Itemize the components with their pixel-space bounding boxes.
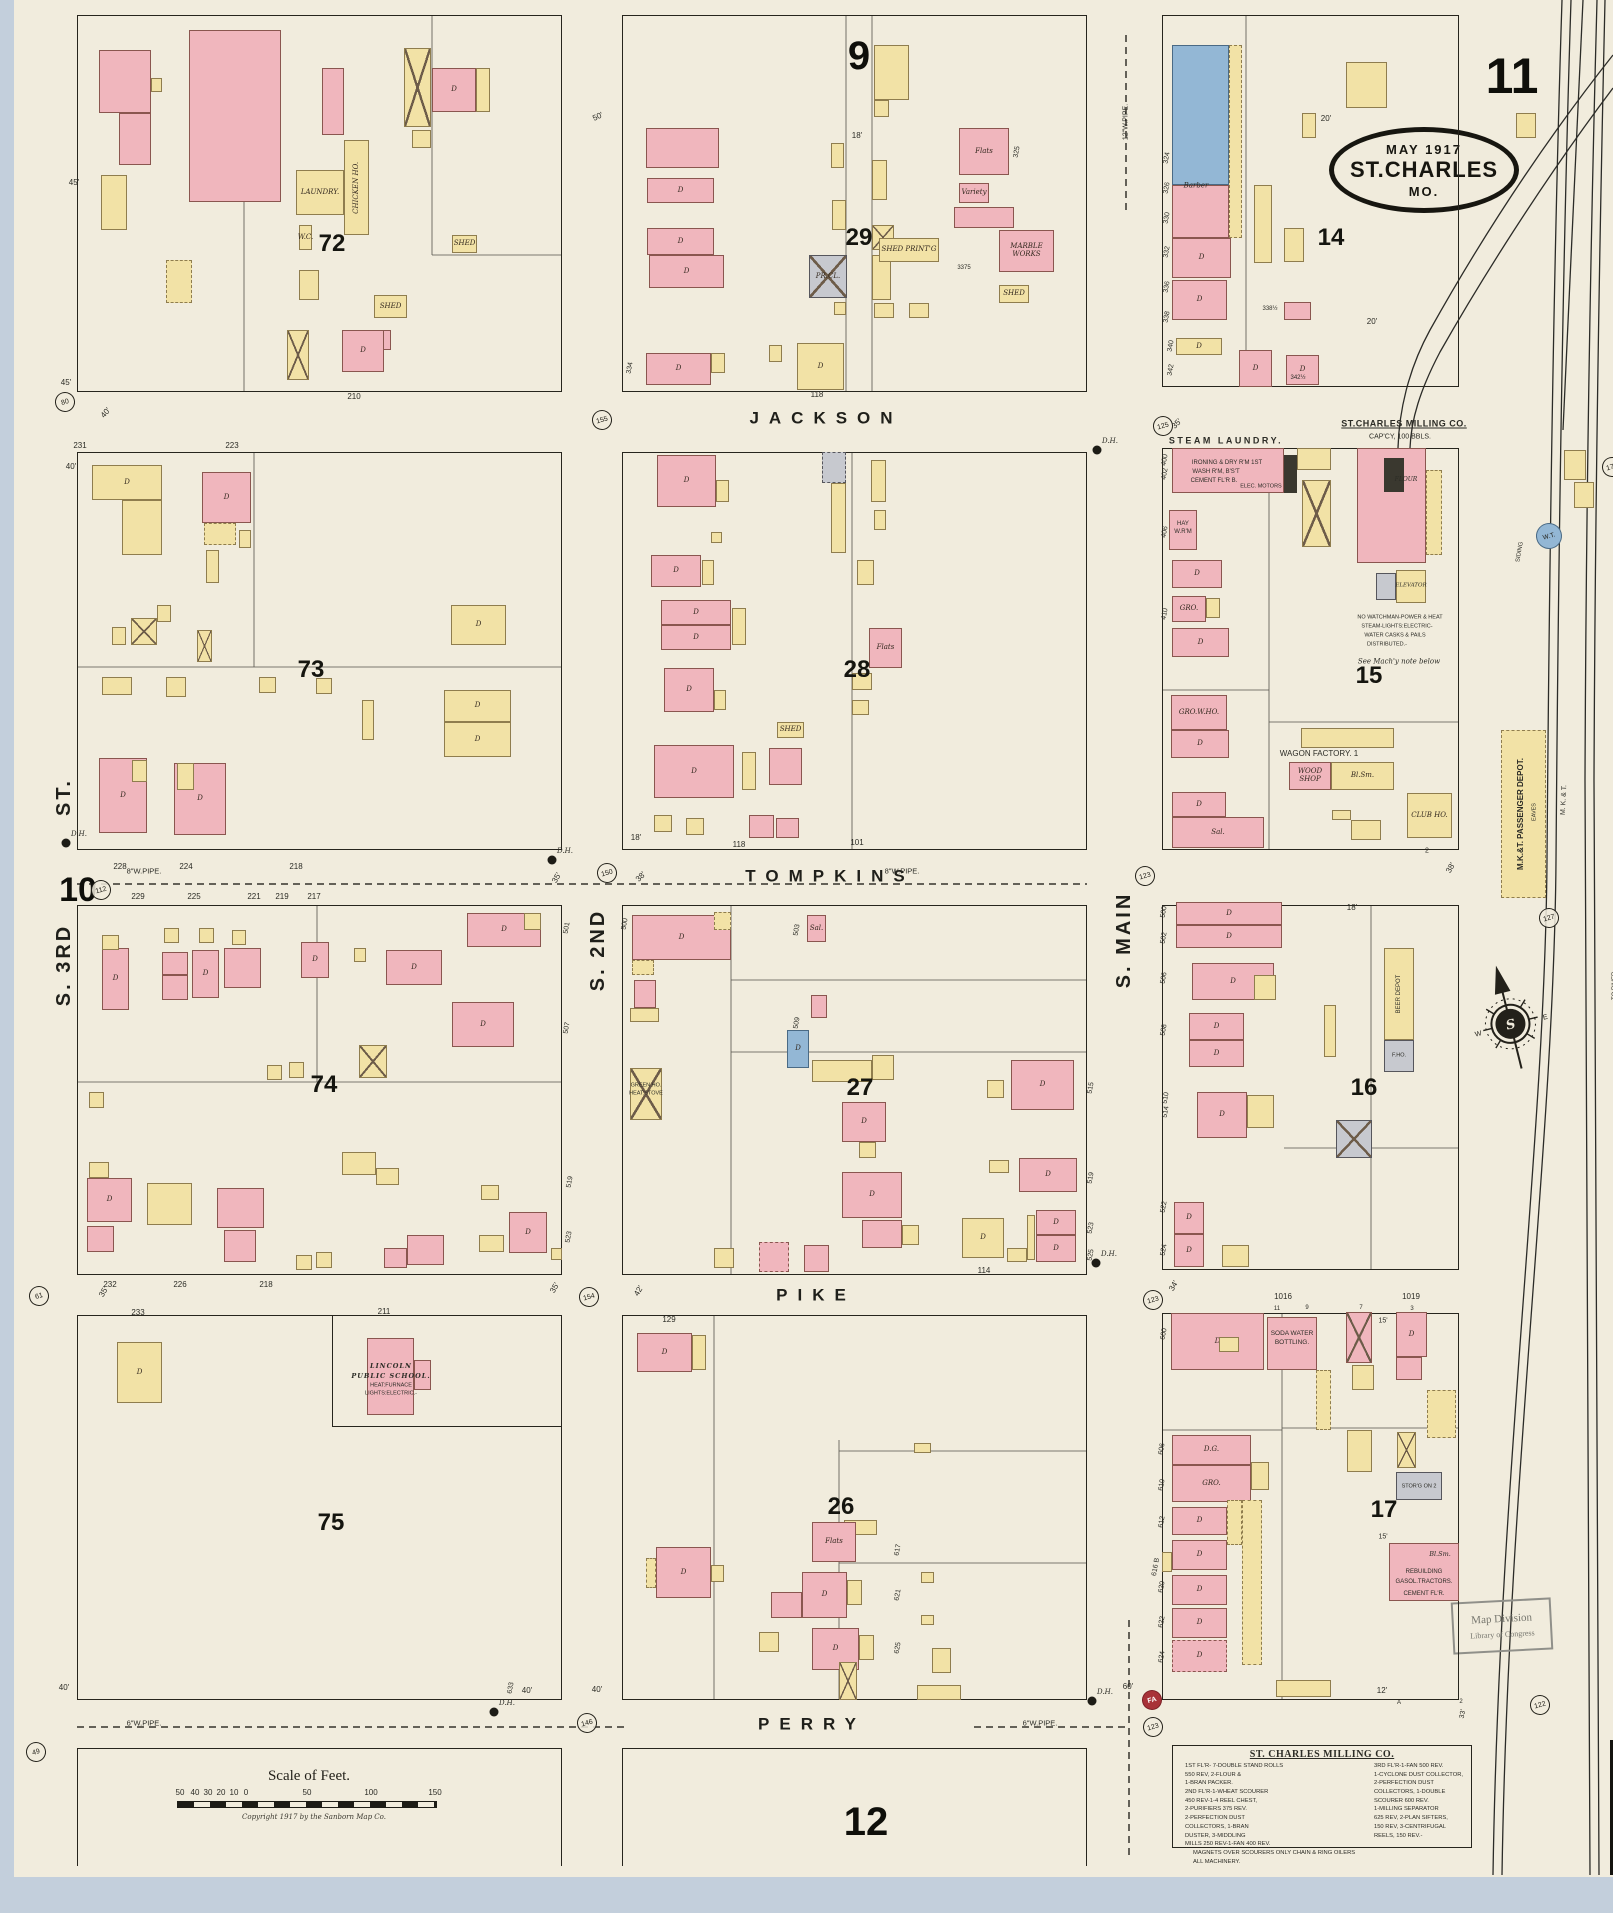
building — [1222, 1245, 1249, 1267]
building — [89, 1092, 104, 1108]
building: D — [444, 690, 511, 722]
building-label: D — [113, 975, 119, 983]
map-label: 40' — [59, 1684, 69, 1692]
block-outline — [77, 1748, 562, 1866]
hydrant-marker: 150 — [595, 861, 619, 885]
building — [1332, 810, 1351, 820]
building — [1302, 113, 1316, 138]
hydrant-marker: 123 — [1141, 1715, 1165, 1739]
building — [874, 303, 894, 318]
map-label: DISTRIBUTED.- — [1367, 642, 1407, 648]
map-label: WAGON FACTORY. 1 — [1280, 750, 1358, 758]
building: D — [451, 605, 506, 645]
building: Bl.Sm. — [1331, 762, 1394, 790]
map-label: 519 — [566, 1176, 575, 1189]
building-label: D — [1409, 1331, 1415, 1339]
map-label: 40' — [66, 463, 76, 471]
building — [630, 1008, 659, 1022]
building — [112, 627, 126, 645]
building-label: D — [501, 926, 507, 934]
map-label: 8"W.PIPE. — [127, 867, 162, 875]
building — [632, 960, 654, 975]
building-label: D — [684, 477, 690, 485]
block-number: 75 — [318, 1509, 345, 1537]
stamp-line-1: Map Division — [1471, 1611, 1532, 1626]
map-label: 38' — [1445, 861, 1457, 874]
building — [732, 608, 746, 645]
building: SHED — [777, 722, 804, 738]
building — [634, 980, 656, 1008]
building — [1324, 1005, 1336, 1057]
building: D — [649, 255, 724, 288]
building — [224, 948, 261, 988]
building-label: D.G. — [1204, 1446, 1219, 1454]
map-label: SIDING — [1515, 541, 1524, 562]
building: D — [1171, 1313, 1264, 1370]
building: D — [1036, 1210, 1076, 1235]
map-label: HAY — [1177, 521, 1189, 527]
building-label: D — [1230, 978, 1236, 986]
building-label: D — [1199, 254, 1205, 262]
hydrant-marker: 155 — [590, 408, 614, 432]
building: D — [509, 1212, 547, 1253]
building — [316, 1252, 332, 1268]
double-hydrant-dot — [62, 839, 71, 848]
building: D — [1176, 925, 1282, 948]
building-label: D — [1226, 933, 1232, 941]
map-label: 218 — [289, 863, 302, 871]
building-label: D — [678, 238, 684, 246]
building: D — [1189, 1040, 1244, 1067]
building-label: Variety — [961, 189, 986, 197]
building-label: D — [312, 956, 318, 964]
building — [859, 1635, 874, 1660]
building — [769, 345, 782, 362]
building — [859, 1142, 876, 1158]
building-label: D — [673, 567, 679, 575]
block-number: 17 — [1371, 1496, 1398, 1524]
building: D — [301, 942, 329, 978]
map-label: EAVES — [1532, 803, 1538, 821]
building-label: D — [480, 1021, 486, 1029]
building-label: D — [360, 347, 366, 355]
building — [914, 1443, 931, 1453]
building-label: Bl.Sm. — [1351, 772, 1374, 780]
milling-machinery-note: ST. CHARLES MILLING CO. 1ST FL'R- 7-DOUB… — [1172, 1745, 1472, 1848]
building-label: D — [1186, 1214, 1192, 1222]
building — [197, 630, 212, 662]
building — [954, 207, 1014, 228]
building: D — [1239, 350, 1272, 387]
building — [646, 128, 719, 168]
map-label: ST. — [54, 778, 74, 816]
double-hydrant-dot — [548, 856, 557, 865]
map-label: 118 — [733, 841, 746, 849]
building: SHED — [999, 285, 1029, 303]
building — [776, 818, 799, 838]
building: D — [1172, 1640, 1227, 1672]
rail-line — [1585, 0, 1597, 1875]
building — [162, 952, 188, 975]
building-label: D — [818, 363, 824, 371]
building: D — [842, 1172, 902, 1218]
double-hydrant-dot — [1088, 1697, 1097, 1706]
building — [686, 818, 704, 835]
building — [1516, 113, 1536, 138]
scale-tick: 50 — [176, 1789, 185, 1797]
map-label: 40' — [592, 1686, 602, 1694]
building: D — [1011, 1060, 1074, 1110]
building-label: MARBLE WORKS — [1000, 243, 1053, 258]
building-label: CLUB HO. — [1411, 812, 1448, 820]
map-label: 20' — [1321, 115, 1331, 123]
stamp-line-2: Library of Congress — [1470, 1628, 1535, 1640]
building — [1027, 1215, 1035, 1260]
building — [1206, 598, 1220, 618]
block-number: 27 — [847, 1074, 874, 1102]
building: PR.CL. — [809, 255, 847, 298]
building-label: D — [1197, 296, 1203, 304]
building — [711, 1565, 724, 1582]
building: Variety — [959, 183, 989, 203]
map-label: 1019 — [1402, 1293, 1420, 1301]
building-label: D — [691, 768, 697, 776]
building — [654, 815, 672, 832]
map-label: 8"W.PIPE. — [885, 867, 920, 875]
map-label: STOR'G ON 2 — [1402, 1484, 1437, 1490]
building-label: D — [1186, 1247, 1192, 1255]
building: D — [1172, 1575, 1227, 1605]
block-number: 14 — [1318, 224, 1345, 252]
building — [267, 1065, 282, 1080]
building — [1007, 1248, 1027, 1262]
map-label: 616 B — [1151, 1557, 1161, 1576]
svg-text:E: E — [1542, 1014, 1549, 1022]
building — [1396, 1357, 1422, 1380]
map-label: 18' — [852, 132, 862, 140]
hydrant-marker: 177 — [1600, 455, 1613, 479]
map-label: 9 — [1305, 1305, 1308, 1311]
building-label: WOOD SHOP — [1290, 768, 1330, 783]
block-number: 29 — [846, 224, 873, 252]
building-label: D — [124, 479, 130, 487]
map-label: 45' — [69, 179, 79, 187]
building — [299, 270, 319, 300]
map-label: 3375 — [957, 265, 970, 271]
block-number: 16 — [1351, 1074, 1378, 1102]
building: D — [1036, 1235, 1076, 1262]
building: D — [651, 555, 701, 587]
building — [359, 1045, 387, 1078]
building — [166, 260, 192, 303]
building-label: D — [1253, 365, 1259, 373]
map-label: 229 — [131, 893, 144, 901]
building: WOOD SHOP — [1289, 762, 1331, 790]
map-sheet: MAY 1917 ST.CHARLES MO. S W E Scale of F… — [14, 0, 1613, 1877]
building: D — [1396, 1312, 1427, 1357]
building: GRO.W.HO. — [1171, 695, 1227, 730]
building — [217, 1188, 264, 1228]
building — [1229, 45, 1242, 238]
map-label: LIGHTS:ELECTRIC.- — [365, 1391, 417, 1397]
map-label: 34' — [1168, 1279, 1180, 1292]
building: D — [1172, 1608, 1227, 1638]
building: D — [386, 950, 442, 985]
building: D — [842, 1102, 886, 1142]
map-label: 515 — [1087, 1082, 1096, 1095]
building: D — [802, 1572, 847, 1618]
building-label: D — [1214, 1050, 1220, 1058]
building — [921, 1615, 934, 1625]
map-label: WASH R'M, B'S'T — [1192, 469, 1239, 475]
building-label: SHED — [1003, 290, 1025, 298]
building — [716, 480, 729, 502]
map-label: CEMENT FL'R. — [1403, 1591, 1444, 1597]
map-label: PIKE — [776, 1287, 856, 1304]
building-label: D — [869, 1191, 875, 1199]
adjacent-sheet-number: 12 — [844, 1802, 889, 1842]
map-label: 6"W.PIPE. — [127, 1719, 162, 1727]
scale-tick: 0 — [244, 1789, 248, 1797]
map-label: 15' — [1378, 1318, 1387, 1325]
building — [87, 1226, 114, 1252]
map-label: 523 — [565, 1231, 574, 1244]
building — [874, 45, 909, 100]
building-label: D — [476, 621, 482, 629]
building: D — [92, 465, 162, 500]
map-label: 221 — [247, 893, 260, 901]
map-label: WATER CASKS & PAILS — [1364, 633, 1425, 639]
map-label: 223 — [225, 442, 238, 450]
building-label: LAUNDRY. — [301, 189, 339, 197]
building-label: D — [1040, 1081, 1046, 1089]
map-label: 225 — [187, 893, 200, 901]
building: D — [1172, 628, 1229, 657]
map-label: 18' — [631, 834, 641, 842]
scale-tick: 20 — [217, 1789, 226, 1797]
building — [1251, 1462, 1269, 1490]
building-label: SHED — [780, 726, 802, 734]
building: D — [1176, 902, 1282, 925]
map-label: 12"W.PIPE. — [1123, 104, 1130, 140]
building — [157, 605, 171, 622]
hydrant-marker: 154 — [577, 1285, 601, 1309]
map-label: 233 — [131, 1309, 144, 1317]
building: D — [432, 68, 476, 112]
block-number: 26 — [828, 1493, 855, 1521]
building-label: D — [1194, 570, 1200, 578]
library-stamp: Map Division Library of Congress — [1451, 1597, 1554, 1654]
water-tank-marker: W.T. — [1533, 520, 1565, 552]
building — [479, 1235, 504, 1252]
map-label: GREEN HO. — [631, 1083, 662, 1089]
building — [239, 530, 251, 548]
building — [1172, 45, 1229, 185]
svg-text:W: W — [1474, 1030, 1482, 1038]
building — [102, 677, 132, 695]
double-hydrant-label: D.H. — [499, 1699, 515, 1707]
building-label: GRO. — [1180, 605, 1198, 613]
map-label: LINCOLN — [370, 1363, 412, 1370]
building — [804, 1245, 829, 1272]
building: D — [646, 353, 711, 385]
building-label: D — [525, 1229, 531, 1237]
hydrant-marker: 123 — [1133, 864, 1157, 888]
building — [711, 532, 722, 543]
map-label: W.R'M — [1174, 529, 1191, 535]
building — [1574, 482, 1594, 508]
block-number: 72 — [319, 230, 346, 258]
building — [204, 523, 236, 545]
map-label: 210 — [347, 393, 360, 401]
map-label: 231 — [73, 442, 86, 450]
map-label: S. 3RD — [54, 924, 74, 1006]
building-label: D — [1197, 1517, 1203, 1525]
map-label: 338½ — [1262, 306, 1277, 312]
building-label: D — [1053, 1245, 1059, 1253]
building — [102, 935, 119, 950]
building — [376, 1168, 399, 1185]
building: D — [1174, 1234, 1204, 1267]
building: SHED — [452, 235, 477, 253]
building — [224, 1230, 256, 1262]
building: D — [1172, 560, 1222, 588]
building — [831, 483, 846, 553]
building-label: D — [475, 736, 481, 744]
map-label: 50' — [592, 111, 605, 123]
building-label: D — [1197, 1586, 1203, 1594]
building-label: GRO. — [1202, 1480, 1220, 1488]
map-label: 1016 — [1274, 1293, 1292, 1301]
building — [1301, 728, 1394, 748]
building — [832, 200, 846, 230]
building — [1284, 455, 1297, 493]
building-label: D — [1300, 366, 1306, 374]
scale-tick: 150 — [428, 1789, 441, 1797]
building — [1227, 1500, 1242, 1545]
adjacent-sheet-number: 9 — [848, 36, 870, 76]
map-label: 2 — [1425, 848, 1429, 855]
double-hydrant-label: D.H. — [71, 830, 87, 838]
map-label: NO WATCHMAN-POWER & HEAT — [1357, 615, 1442, 621]
building — [166, 677, 186, 697]
building — [404, 48, 431, 127]
building — [749, 815, 774, 838]
building — [119, 113, 151, 165]
building — [874, 510, 886, 530]
building: D — [637, 1333, 692, 1372]
building — [1384, 458, 1404, 492]
building — [412, 130, 431, 148]
building: Flats — [812, 1522, 856, 1562]
map-label: 18' — [1347, 904, 1357, 912]
building — [289, 1062, 304, 1078]
building: D — [797, 343, 844, 390]
map-label: 35' — [549, 1281, 561, 1294]
building: D — [202, 472, 251, 523]
building-label: D — [120, 792, 126, 800]
building — [1426, 470, 1442, 555]
map-label: JACKSON — [749, 410, 902, 427]
map-label: PERRY — [758, 1716, 866, 1733]
milling-note-title: ST. CHARLES MILLING CO. — [1173, 1749, 1471, 1760]
building: D — [452, 1002, 514, 1047]
building: D — [87, 1178, 132, 1222]
building — [407, 1235, 444, 1265]
building — [481, 1185, 499, 1200]
building-label: D — [678, 187, 684, 195]
building — [759, 1632, 779, 1652]
building: D — [1172, 238, 1231, 278]
building — [921, 1572, 934, 1583]
building — [771, 1592, 802, 1618]
building — [131, 618, 157, 645]
block-outline — [1162, 905, 1459, 1270]
map-label: Bl.Sm. — [1429, 1551, 1451, 1558]
building: D — [1019, 1158, 1077, 1192]
building — [1346, 62, 1387, 108]
building-label: D — [662, 1349, 668, 1357]
scale-tick: 50 — [303, 1789, 312, 1797]
double-hydrant-dot — [1092, 1259, 1101, 1268]
building — [189, 30, 281, 202]
hydrant-marker: 127 — [1537, 906, 1561, 930]
building: D — [787, 1030, 809, 1068]
milling-note-footer: MAGNETS OVER SCOURERS ONLY CHAIN & RING … — [1173, 1849, 1471, 1866]
map-label: SODA WATER — [1271, 1331, 1314, 1338]
building: SHED PRINT'G — [879, 238, 939, 262]
hydrant-marker: 80 — [53, 390, 77, 414]
building — [162, 975, 188, 1000]
building — [1242, 1500, 1262, 1665]
building — [151, 78, 162, 92]
map-label: 519 — [1087, 1172, 1096, 1185]
building — [759, 1242, 789, 1272]
building-label: SHED — [454, 240, 476, 248]
map-label: 523 — [1087, 1222, 1096, 1235]
building-label: D — [833, 1645, 839, 1653]
building — [296, 1255, 312, 1270]
building — [524, 913, 541, 930]
building: D — [1197, 1092, 1247, 1138]
double-hydrant-label: D.H. — [1102, 437, 1118, 445]
building — [989, 1160, 1009, 1173]
building — [1336, 1120, 1372, 1158]
map-label: A — [1397, 1700, 1401, 1706]
building — [862, 1220, 902, 1248]
building-label: D — [1045, 1171, 1051, 1179]
rail-line — [1594, 0, 1605, 1875]
building — [99, 50, 151, 113]
map-label: PUBLIC SCHOOL. — [351, 1373, 430, 1380]
scale-tick: 100 — [364, 1789, 377, 1797]
building: D — [1176, 338, 1222, 355]
building-label: D — [795, 1045, 801, 1053]
map-label: 38' — [634, 870, 647, 883]
building — [132, 760, 147, 782]
building — [1397, 1432, 1416, 1468]
building — [1346, 1312, 1372, 1363]
map-label: HEAT:FURNACE — [370, 1383, 412, 1389]
building — [1427, 1390, 1456, 1438]
building — [1247, 1095, 1274, 1128]
map-label: 2 — [1459, 1699, 1462, 1705]
building: D — [1189, 1013, 1244, 1040]
map-label: 45' — [61, 379, 71, 387]
building — [1564, 450, 1586, 480]
building: D — [647, 178, 714, 203]
map-label: 3 — [1410, 1306, 1413, 1312]
